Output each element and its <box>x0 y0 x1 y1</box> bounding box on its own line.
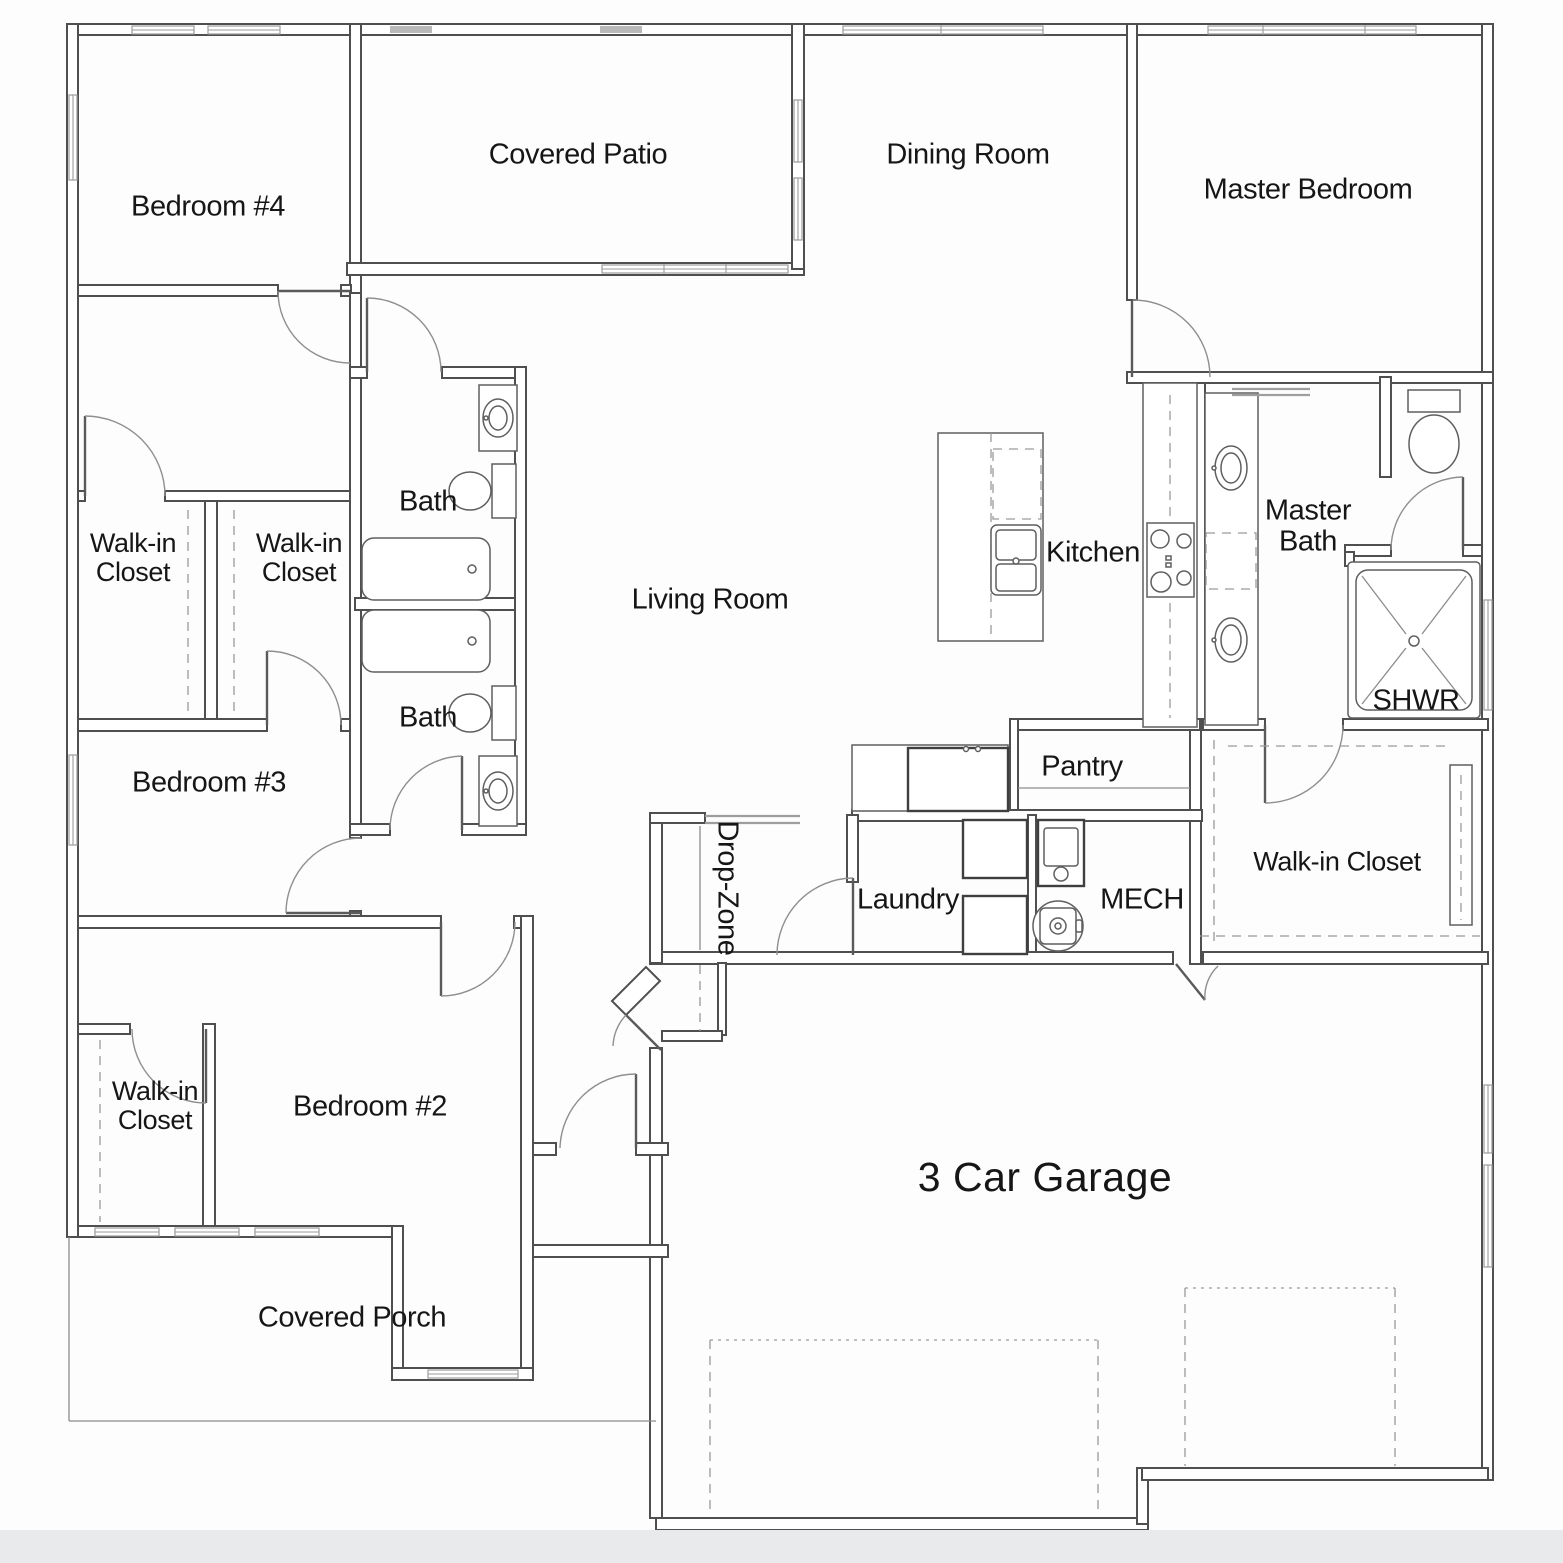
room-label-walkin-closet-b2: Walk-in Closet <box>112 1077 198 1135</box>
floor-plan-canvas: Bedroom #4 Covered Patio Dining Room Mas… <box>0 0 1563 1563</box>
room-label-walkin-closet-master: Walk-in Closet <box>1253 847 1420 876</box>
room-label-kitchen: Kitchen <box>1046 537 1140 568</box>
room-label-master-bath: Master Bath <box>1265 496 1351 559</box>
entry-chamfer-wall <box>612 967 660 1015</box>
room-label-covered-patio: Covered Patio <box>489 139 668 170</box>
room-label-drop-zone: Drop-Zone <box>711 820 742 955</box>
sink-icon <box>479 756 517 826</box>
bathtub-icon <box>362 538 490 600</box>
toilet-icon <box>449 686 516 740</box>
toilet-icon <box>1408 390 1460 473</box>
cooktop-icon <box>1147 523 1194 597</box>
range-icon <box>908 748 1008 811</box>
room-label-covered-porch: Covered Porch <box>258 1302 446 1333</box>
garage-door-dashed-outlines <box>710 1288 1395 1516</box>
room-label-bedroom-2: Bedroom #2 <box>293 1091 447 1122</box>
water-heater-icon <box>1033 901 1083 951</box>
room-label-walkin-closet-b4: Walk-in Closet <box>90 529 176 587</box>
furnace-icon <box>1038 820 1084 886</box>
room-label-bath-lower: Bath <box>399 702 457 733</box>
kitchen-counter-and-cooktop <box>1143 383 1197 727</box>
washer-icon <box>963 820 1027 878</box>
room-label-pantry: Pantry <box>1041 751 1122 782</box>
room-label-garage: 3 Car Garage <box>918 1155 1172 1199</box>
laundry-appliances <box>963 820 1027 954</box>
room-label-dining-room: Dining Room <box>886 139 1049 170</box>
kitchen-island-icon <box>938 433 1043 641</box>
mech-equipment <box>1033 820 1084 951</box>
room-label-bedroom-3: Bedroom #3 <box>132 767 286 798</box>
room-label-bedroom-4: Bedroom #4 <box>131 191 285 222</box>
room-label-walkin-closet-b3: Walk-in Closet <box>256 529 342 587</box>
room-label-mech: MECH <box>1100 884 1184 915</box>
page-background-strip <box>0 1530 1563 1563</box>
windows <box>69 25 1492 1378</box>
room-label-laundry: Laundry <box>857 884 959 915</box>
room-label-living-room: Living Room <box>632 584 789 615</box>
bathtub-icon <box>362 610 490 672</box>
kitchen-sink-icon <box>991 525 1041 595</box>
room-label-bath-upper: Bath <box>399 486 457 517</box>
interior-walls <box>78 24 1493 1380</box>
toilet-icon <box>449 464 516 518</box>
room-label-shower: SHWR <box>1372 685 1459 716</box>
kitchen-south-counter <box>852 745 1008 811</box>
dryer-icon <box>963 896 1027 954</box>
sink-icon <box>479 385 517 451</box>
room-label-master-bedroom: Master Bedroom <box>1204 174 1413 205</box>
master-closet-shelving <box>1200 740 1480 945</box>
